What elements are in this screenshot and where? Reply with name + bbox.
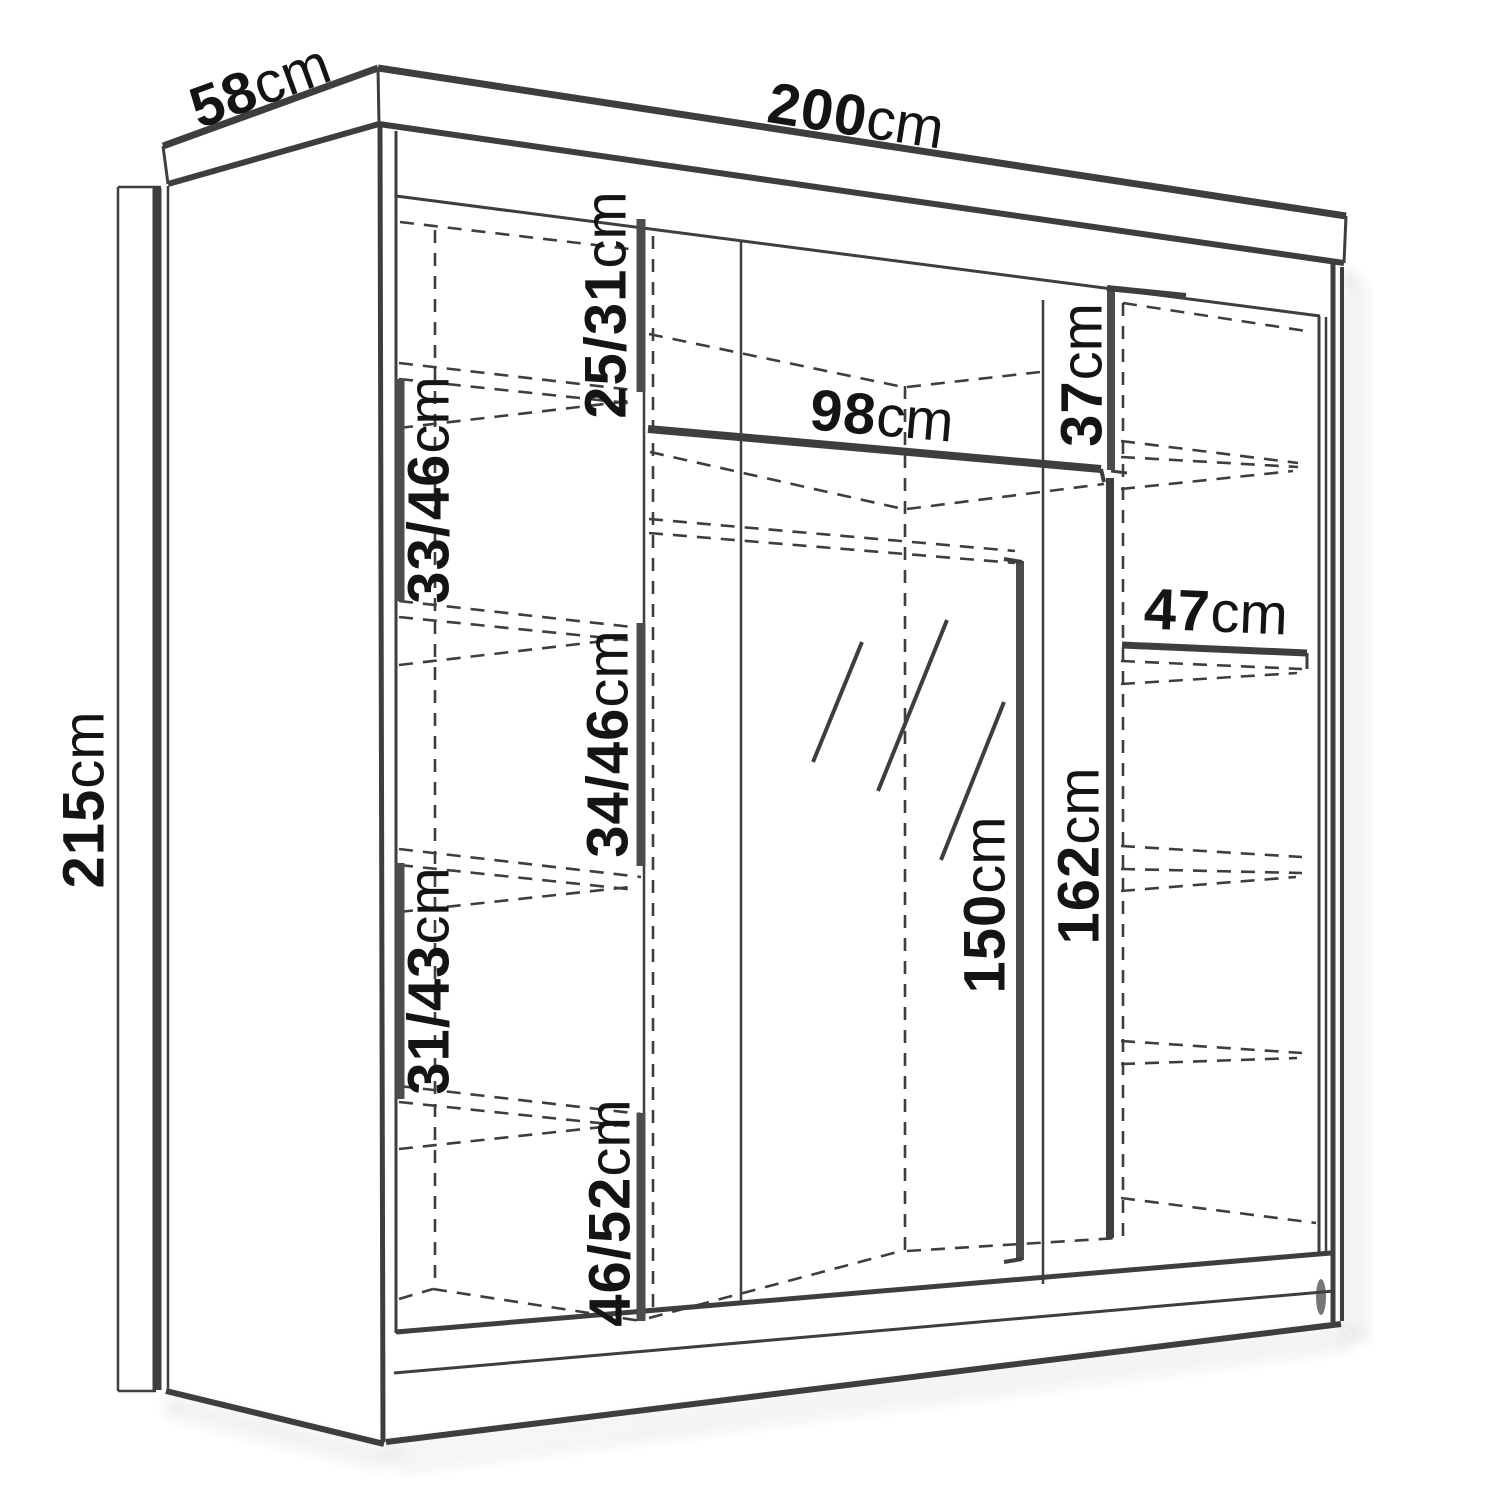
middle-shelf-width-unit: cm (874, 383, 957, 454)
height-unit: cm (52, 711, 117, 788)
mirror-height-label: 150cm (952, 816, 1019, 993)
left-shelf-5-value: 46/52 (578, 1177, 643, 1327)
interior-height-unit: cm (1047, 767, 1112, 844)
left-shelf-1-value: 25/31 (574, 269, 639, 419)
left-shelf-label-1: 25/31cm (573, 191, 640, 418)
right-column-shelves (1121, 303, 1316, 1223)
right-shelf-width-label: 47cm (1143, 575, 1290, 648)
wardrobe-line-drawing (0, 0, 1500, 1500)
left-shelf-4-value: 31/43 (397, 945, 462, 1095)
left-shelf-3-value: 34/46 (576, 708, 641, 858)
right-top-compartment-label: 37cm (1049, 303, 1116, 447)
plinth (386, 1253, 1341, 1442)
middle-shelf-width-value: 98 (808, 377, 880, 448)
top-panel (163, 68, 1346, 263)
left-shelf-4-unit: cm (397, 867, 462, 944)
interior-height-label: 162cm (1046, 767, 1113, 944)
left-shelf-1-unit: cm (574, 191, 639, 268)
left-shelf-2-value: 33/46 (397, 454, 462, 604)
left-side-panel (157, 186, 384, 1444)
wardrobe-dimension-diagram: 58cm 200cm 215cm 25/31cm 33/46cm 34/46cm… (0, 0, 1500, 1500)
mirror-height-value: 150 (953, 894, 1018, 994)
height-dimension-label: 215cm (51, 711, 118, 888)
left-shelf-label-3: 34/46cm (575, 630, 642, 857)
width-unit: cm (862, 86, 948, 162)
right-shelf-width-unit: cm (1209, 579, 1289, 647)
left-shelf-2-unit: cm (397, 376, 462, 453)
interior-height-value: 162 (1047, 845, 1112, 945)
mirror-height-unit: cm (953, 816, 1018, 893)
left-shelf-3-unit: cm (576, 630, 641, 707)
left-shelf-label-5: 46/52cm (577, 1099, 644, 1326)
left-shelf-label-2: 33/46cm (396, 376, 463, 603)
left-shelf-label-4: 31/43cm (396, 867, 463, 1094)
width-value: 200 (764, 70, 873, 149)
height-value: 215 (52, 789, 117, 889)
cabinet-frame (380, 126, 1342, 1442)
right-top-compartment-value: 37 (1050, 380, 1115, 447)
right-shelf-width-value: 47 (1143, 576, 1212, 644)
middle-shelf-width-label: 98cm (807, 376, 956, 455)
right-top-compartment-unit: cm (1050, 303, 1115, 380)
left-shelf-5-unit: cm (578, 1099, 643, 1176)
